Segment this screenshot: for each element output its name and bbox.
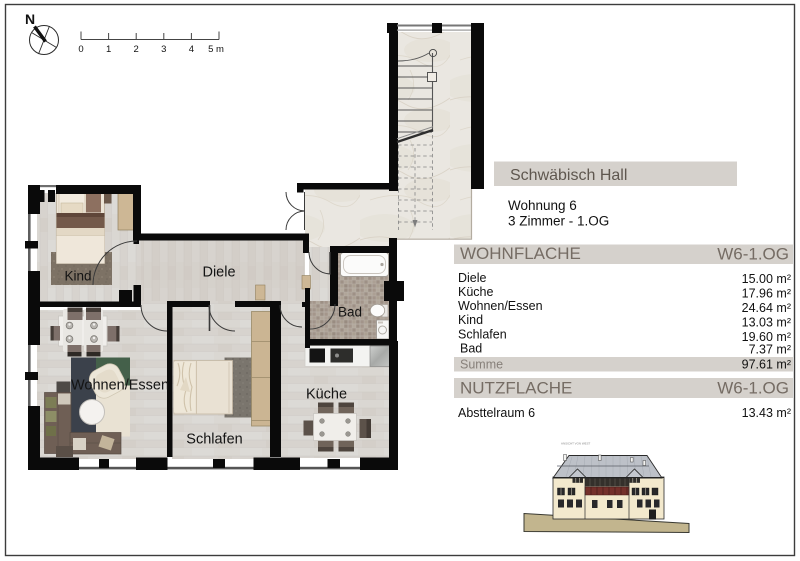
svg-text:Diele: Diele (458, 271, 487, 285)
svg-text:Wohnen/Essen: Wohnen/Essen (71, 378, 169, 394)
svg-text:97.61 m²: 97.61 m² (742, 358, 791, 372)
svg-text:WOHNFLACHE: WOHNFLACHE (460, 244, 581, 263)
svg-text:4: 4 (189, 44, 194, 55)
svg-text:Kind: Kind (458, 313, 483, 327)
svg-text:13.03 m²: 13.03 m² (742, 316, 791, 330)
svg-text:7.37 m²: 7.37 m² (749, 343, 791, 357)
svg-text:Wohnung 6: Wohnung 6 (508, 198, 577, 213)
svg-text:0: 0 (78, 44, 83, 55)
svg-text:1: 1 (106, 44, 111, 55)
svg-text:Küche: Küche (306, 387, 347, 403)
svg-text:2: 2 (134, 44, 139, 55)
svg-text:Wohnen/Essen: Wohnen/Essen (458, 299, 543, 313)
svg-text:Schlafen: Schlafen (186, 432, 242, 448)
svg-text:17.96 m²: 17.96 m² (742, 287, 791, 301)
svg-text:15.00 m²: 15.00 m² (742, 272, 791, 286)
svg-text:3: 3 (161, 44, 166, 55)
svg-text:NUTZFLACHE: NUTZFLACHE (460, 379, 572, 398)
svg-text:Kind: Kind (64, 269, 91, 284)
svg-text:13.43 m²: 13.43 m² (742, 406, 791, 420)
svg-text:Bad: Bad (338, 305, 362, 320)
svg-text:N: N (25, 11, 35, 27)
svg-text:ANSICHT VON WEST: ANSICHT VON WEST (561, 442, 591, 446)
svg-text:5 m: 5 m (208, 44, 224, 55)
svg-text:Absttelraum 6: Absttelraum 6 (458, 406, 535, 420)
svg-text:Diele: Diele (202, 265, 235, 281)
svg-text:Summe: Summe (460, 358, 503, 372)
svg-text:W6-1.OG: W6-1.OG (717, 379, 789, 398)
svg-text:24.64 m²: 24.64 m² (742, 301, 791, 315)
svg-text:Schwäbisch Hall: Schwäbisch Hall (510, 167, 627, 184)
svg-text:Küche: Küche (458, 285, 493, 299)
svg-text:Schlafen: Schlafen (458, 328, 507, 342)
svg-text:Bad: Bad (460, 342, 482, 356)
svg-text:W6-1.OG: W6-1.OG (717, 245, 789, 264)
svg-text:3 Zimmer - 1.OG: 3 Zimmer - 1.OG (508, 214, 609, 229)
